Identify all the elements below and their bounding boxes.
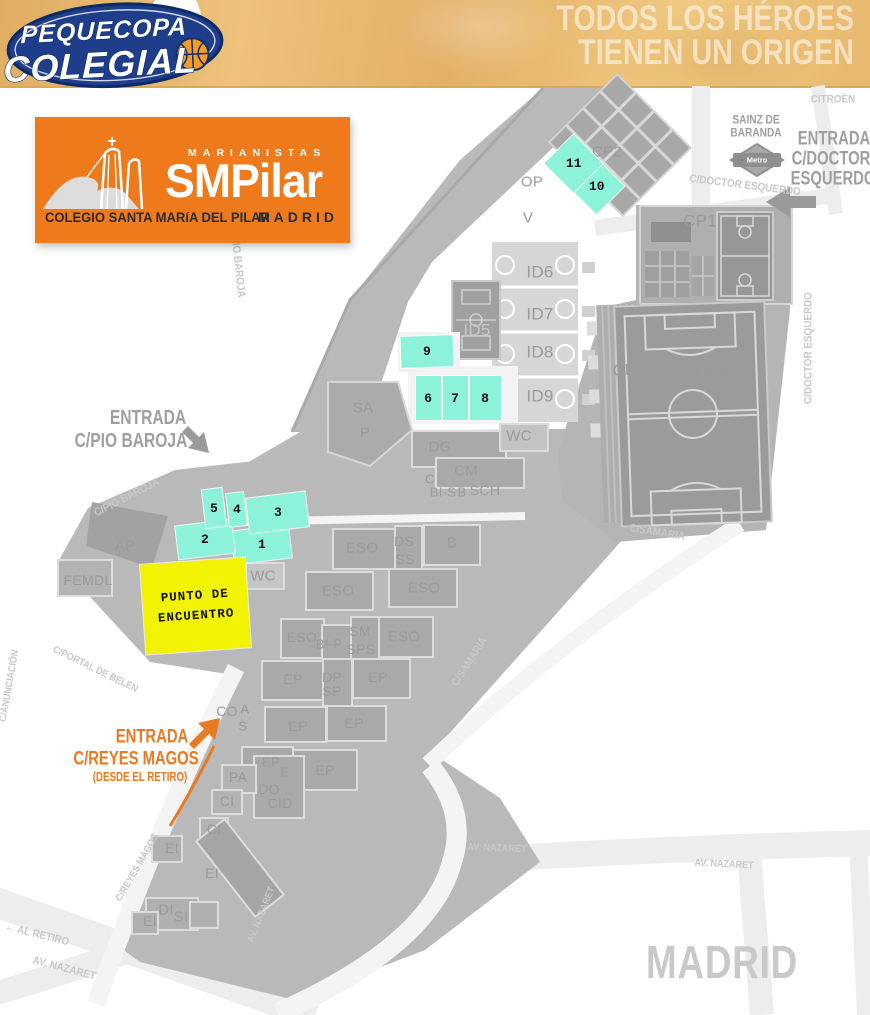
map-label: ESO — [287, 630, 317, 644]
court-4: 4 — [226, 492, 247, 527]
map-label: AV. NAZARET — [467, 843, 526, 855]
court-number: 7 — [451, 391, 459, 406]
map-label: C/DOCTOR — [792, 150, 870, 169]
map-label: WC — [250, 569, 276, 584]
school-subtitle: COLEGIO SANTA MARíA DEL PILAR — [45, 209, 270, 225]
map-label: EP — [315, 763, 334, 777]
court-7: 7 — [443, 376, 468, 420]
map-label: SCH — [470, 483, 500, 497]
court-number: 3 — [273, 505, 281, 520]
map-label: ESO — [408, 581, 441, 596]
map-label: C/DOCTOR ESQUERDO — [804, 292, 815, 404]
map-label: ID8 — [526, 344, 553, 361]
court-number: 2 — [201, 532, 209, 547]
map-label: DS — [394, 534, 414, 548]
map-label: SS — [395, 552, 414, 566]
court-3: 3 — [246, 491, 309, 533]
map-label: DG — [428, 440, 451, 455]
map-label: BI-S — [430, 486, 456, 499]
map-label: ESO — [388, 630, 421, 645]
court-number: 8 — [481, 391, 489, 406]
court-number: 6 — [424, 391, 432, 406]
meeting-point-box: PUNTO DE ENCUENTRO — [140, 557, 251, 654]
map-label: AP — [115, 539, 136, 554]
map-label: E — [281, 766, 290, 779]
court-9: 9 — [400, 335, 453, 368]
court-number: 5 — [210, 501, 218, 516]
map-label: OP — [521, 175, 543, 190]
school-logo-box: MARIANISTAS SMPilar COLEGIO SANTA MARíA … — [35, 117, 350, 243]
map-label: EP — [283, 672, 302, 686]
map-label: CITROËN — [811, 95, 856, 106]
map-label: (DESDE EL RETIRO) — [93, 771, 188, 784]
map-label: SP — [322, 684, 341, 698]
school-brand-large: SMPilar — [165, 153, 322, 208]
map-label: ID6 — [526, 264, 553, 281]
map-label: SAINZ DE — [732, 115, 779, 127]
map-label: B — [447, 536, 457, 551]
map-label: ID9 — [526, 388, 553, 405]
map-label: WC — [506, 429, 532, 444]
map-label: V — [523, 211, 533, 226]
map-label: EI — [205, 866, 219, 880]
map-label: P — [360, 426, 370, 441]
map-label: ID7 — [526, 306, 553, 323]
map-label: EP — [288, 719, 307, 733]
map-label: DP — [322, 670, 342, 684]
map-label: EP — [344, 716, 363, 730]
map-label: S — [239, 720, 248, 733]
map-label: A — [241, 703, 250, 716]
map-label: CI — [207, 822, 222, 836]
court-8: 8 — [470, 376, 501, 420]
map-label: CP4 — [612, 362, 645, 380]
map-label: CM — [454, 464, 478, 479]
court-number: 9 — [423, 344, 431, 359]
map-label: CO — [216, 704, 238, 718]
map-label: C/PIO BAROJA — [75, 431, 188, 451]
map-label: EI — [165, 841, 179, 855]
map-label: EP — [368, 670, 387, 684]
court-6: 6 — [416, 376, 441, 420]
map-label: ENTRADA — [110, 408, 186, 428]
map-label: ESO — [346, 541, 379, 556]
map-label: ESQUERDO — [791, 170, 870, 189]
map-label: ID5 — [463, 322, 490, 339]
map-label: ENTRADA — [116, 728, 188, 747]
map-label: FEMDL — [64, 573, 113, 587]
map-label: BI-P — [316, 638, 342, 651]
court-number: 11 — [565, 155, 581, 170]
map-label: CI — [220, 794, 235, 808]
screenshot-root: PEQUECOPA COLEGIAL TODOS LOS HÉROES TIEN… — [0, 0, 870, 1015]
map-label: SI — [174, 910, 189, 925]
map-label: CP1 — [683, 213, 717, 230]
map-label: Metro — [747, 156, 767, 164]
map-label: ENTRADA — [798, 130, 870, 149]
map-label: EI — [143, 914, 157, 928]
map-label: SPS — [347, 642, 376, 656]
map-label: SM — [349, 624, 371, 638]
map-label: MADRID — [646, 939, 798, 985]
map-label: DI — [158, 903, 174, 918]
map-label: C/REYES MAGOS — [73, 750, 198, 769]
map-label: PA — [229, 770, 247, 784]
map-label: CP3 — [695, 364, 729, 381]
map-label: SA — [353, 401, 374, 416]
map-label: BARANDA — [730, 128, 781, 140]
school-city: MADRID — [258, 209, 338, 225]
map-label: EP — [262, 756, 280, 769]
map-label: DO — [258, 782, 280, 796]
map-label: ESO — [322, 584, 355, 599]
court-number: 4 — [232, 502, 240, 517]
map-label: B — [458, 486, 467, 499]
court-number: 1 — [257, 537, 265, 552]
meeting-point-line2: ENCUENTRO — [157, 603, 235, 628]
map-label: CID — [267, 796, 292, 810]
court-number: 10 — [588, 178, 604, 193]
